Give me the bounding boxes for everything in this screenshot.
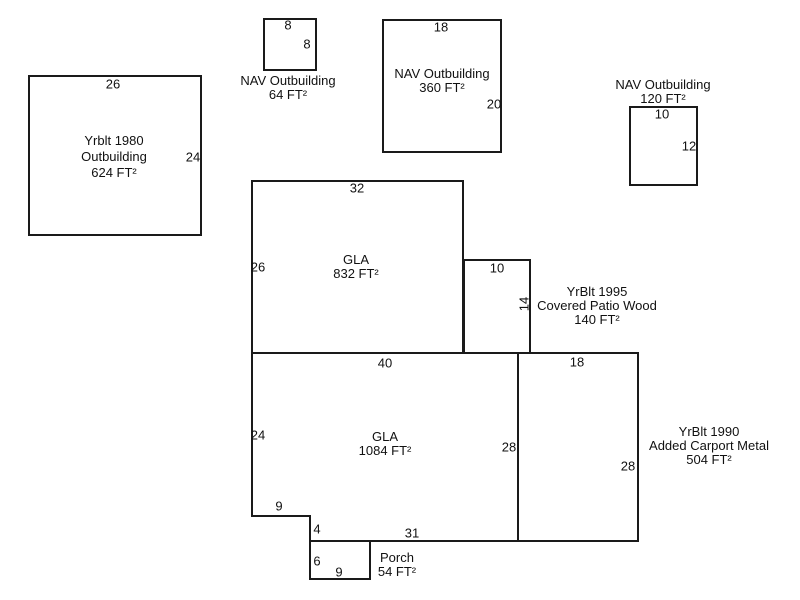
porch-dim-left: 6 — [313, 555, 320, 568]
covered-patio-label-line1: YrBlt 1995 — [537, 285, 657, 299]
nav-120-dim-top: 10 — [655, 108, 669, 121]
carport-label: YrBlt 1990 Added Carport Metal 504 FT² — [649, 425, 769, 467]
gla-1084-dim-left: 24 — [251, 429, 265, 442]
carport-shape — [518, 353, 638, 541]
nav-64-label-area: 64 FT² — [240, 88, 335, 102]
nav-360-label: NAV Outbuilding 360 FT² — [394, 67, 489, 95]
gla-1084-dim-bottom: 31 — [405, 527, 419, 540]
covered-patio-label: YrBlt 1995 Covered Patio Wood 140 FT² — [537, 285, 657, 327]
outbuilding-1980-dim-right: 24 — [186, 151, 200, 164]
gla-1084-label-area: 1084 FT² — [359, 444, 412, 458]
gla-1084-dim-top: 40 — [378, 357, 392, 370]
carport-dim-top: 18 — [570, 356, 584, 369]
covered-patio-dim-top: 10 — [490, 262, 504, 275]
gla-832-label-line1: GLA — [333, 253, 379, 267]
nav-120-label-line1: NAV Outbuilding — [615, 78, 710, 92]
gla-832-label-area: 832 FT² — [333, 267, 379, 281]
carport-label-line2: Added Carport Metal — [649, 439, 769, 453]
gla-1084-dim-right: 28 — [502, 441, 516, 454]
nav-120-label-area: 120 FT² — [615, 92, 710, 106]
nav-360-dim-right: 20 — [487, 98, 501, 111]
porch-label-line1: Porch — [378, 551, 416, 565]
nav-64-label: NAV Outbuilding 64 FT² — [240, 74, 335, 102]
nav-360-label-area: 360 FT² — [394, 81, 489, 95]
covered-patio-dim-right: 14 — [518, 297, 531, 311]
outbuilding-1980-label-area: 624 FT² — [81, 165, 147, 181]
gla-1084-label: GLA 1084 FT² — [359, 430, 412, 458]
gla-832-label: GLA 832 FT² — [333, 253, 379, 281]
carport-label-line1: YrBlt 1990 — [649, 425, 769, 439]
carport-label-area: 504 FT² — [649, 453, 769, 467]
porch-label-area: 54 FT² — [378, 565, 416, 579]
covered-patio-label-area: 140 FT² — [537, 313, 657, 327]
nav-360-dim-top: 18 — [434, 21, 448, 34]
gla-1084-dim-notch-h: 9 — [275, 500, 282, 513]
outbuilding-1980-label-line1: Yrblt 1980 — [81, 133, 147, 149]
sketch-canvas: 26 24 Yrblt 1980 Outbuilding 624 FT² 8 8… — [0, 0, 800, 600]
gla-832-dim-left: 26 — [251, 261, 265, 274]
gla-832-dim-top: 32 — [350, 182, 364, 195]
carport-dim-right: 28 — [621, 460, 635, 473]
covered-patio-label-line2: Covered Patio Wood — [537, 299, 657, 313]
nav-360-label-line1: NAV Outbuilding — [394, 67, 489, 81]
outbuilding-1980-label: Yrblt 1980 Outbuilding 624 FT² — [81, 133, 147, 181]
nav-64-dim-top: 8 — [284, 19, 291, 32]
porch-label: Porch 54 FT² — [378, 551, 416, 579]
outbuilding-1980-dim-top: 26 — [106, 78, 120, 91]
gla-1084-label-line1: GLA — [359, 430, 412, 444]
nav-120-label: NAV Outbuilding 120 FT² — [615, 78, 710, 106]
gla-1084-dim-notch-v: 4 — [313, 523, 320, 536]
nav-120-dim-right: 12 — [682, 140, 696, 153]
nav-64-dim-right: 8 — [303, 38, 310, 51]
outbuilding-1980-label-line2: Outbuilding — [81, 149, 147, 165]
nav-64-label-line1: NAV Outbuilding — [240, 74, 335, 88]
porch-dim-bottom: 9 — [335, 566, 342, 579]
